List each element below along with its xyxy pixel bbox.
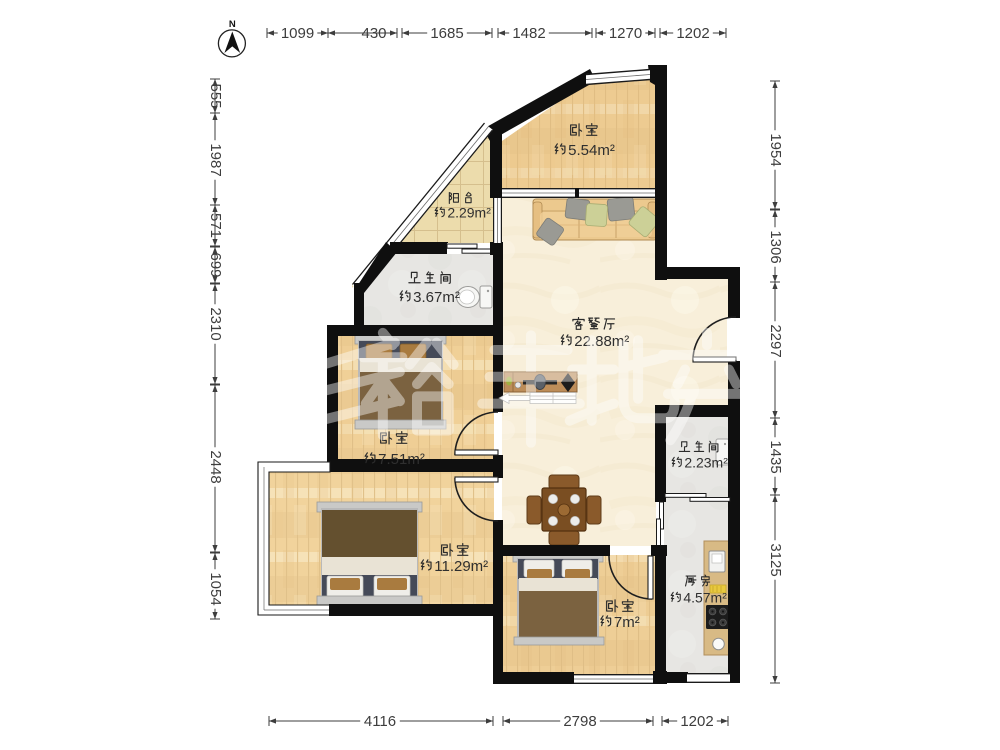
svg-text:571: 571 [207, 213, 224, 238]
svg-text:4116: 4116 [364, 713, 396, 730]
svg-text:1482: 1482 [512, 25, 545, 42]
svg-text:2297: 2297 [767, 324, 784, 357]
svg-text:1099: 1099 [281, 25, 314, 42]
svg-text:7m²: 7m² [614, 614, 640, 631]
svg-text:555: 555 [207, 83, 224, 108]
svg-text:1306: 1306 [767, 230, 784, 263]
svg-text:1270: 1270 [609, 25, 642, 42]
svg-text:N: N [229, 19, 236, 30]
svg-text:4.57m²: 4.57m² [683, 590, 727, 606]
svg-text:3.67m²: 3.67m² [413, 289, 460, 306]
svg-text:1054: 1054 [207, 572, 224, 605]
svg-text:1202: 1202 [676, 25, 709, 42]
svg-text:2448: 2448 [207, 450, 224, 483]
svg-text:1987: 1987 [207, 143, 224, 176]
svg-text:7.51m²: 7.51m² [378, 451, 425, 468]
svg-text:11.29m²: 11.29m² [434, 558, 488, 575]
svg-text:2.29m²: 2.29m² [447, 205, 491, 221]
svg-text:699: 699 [207, 252, 224, 277]
svg-text:1202: 1202 [680, 713, 713, 730]
svg-text:2798: 2798 [563, 713, 596, 730]
svg-text:430: 430 [361, 25, 386, 42]
svg-text:1685: 1685 [430, 25, 463, 42]
svg-text:5.54m²: 5.54m² [568, 142, 615, 159]
svg-text:2310: 2310 [207, 307, 224, 340]
svg-text:2.23m²: 2.23m² [684, 455, 728, 471]
svg-text:1435: 1435 [767, 440, 784, 473]
svg-text:3125: 3125 [767, 543, 784, 576]
svg-text:1954: 1954 [767, 133, 784, 166]
